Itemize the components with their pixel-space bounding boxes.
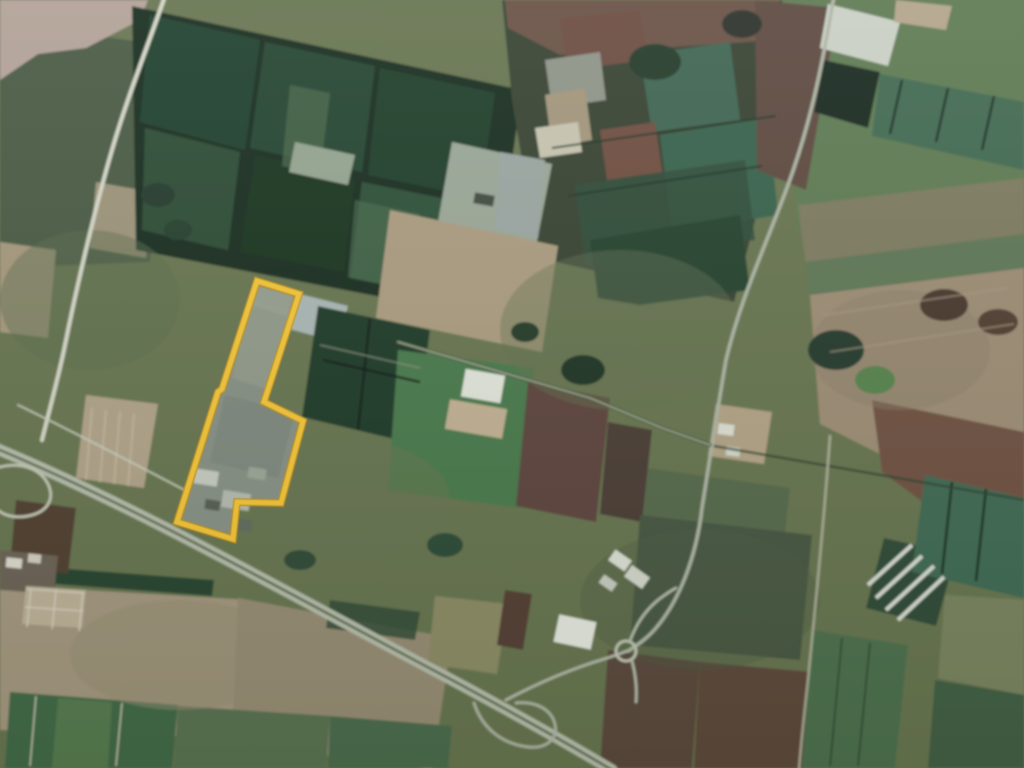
haze-overlay (0, 0, 1024, 768)
satellite-map-image[interactable] (0, 0, 1024, 768)
satellite-map (0, 0, 1024, 768)
